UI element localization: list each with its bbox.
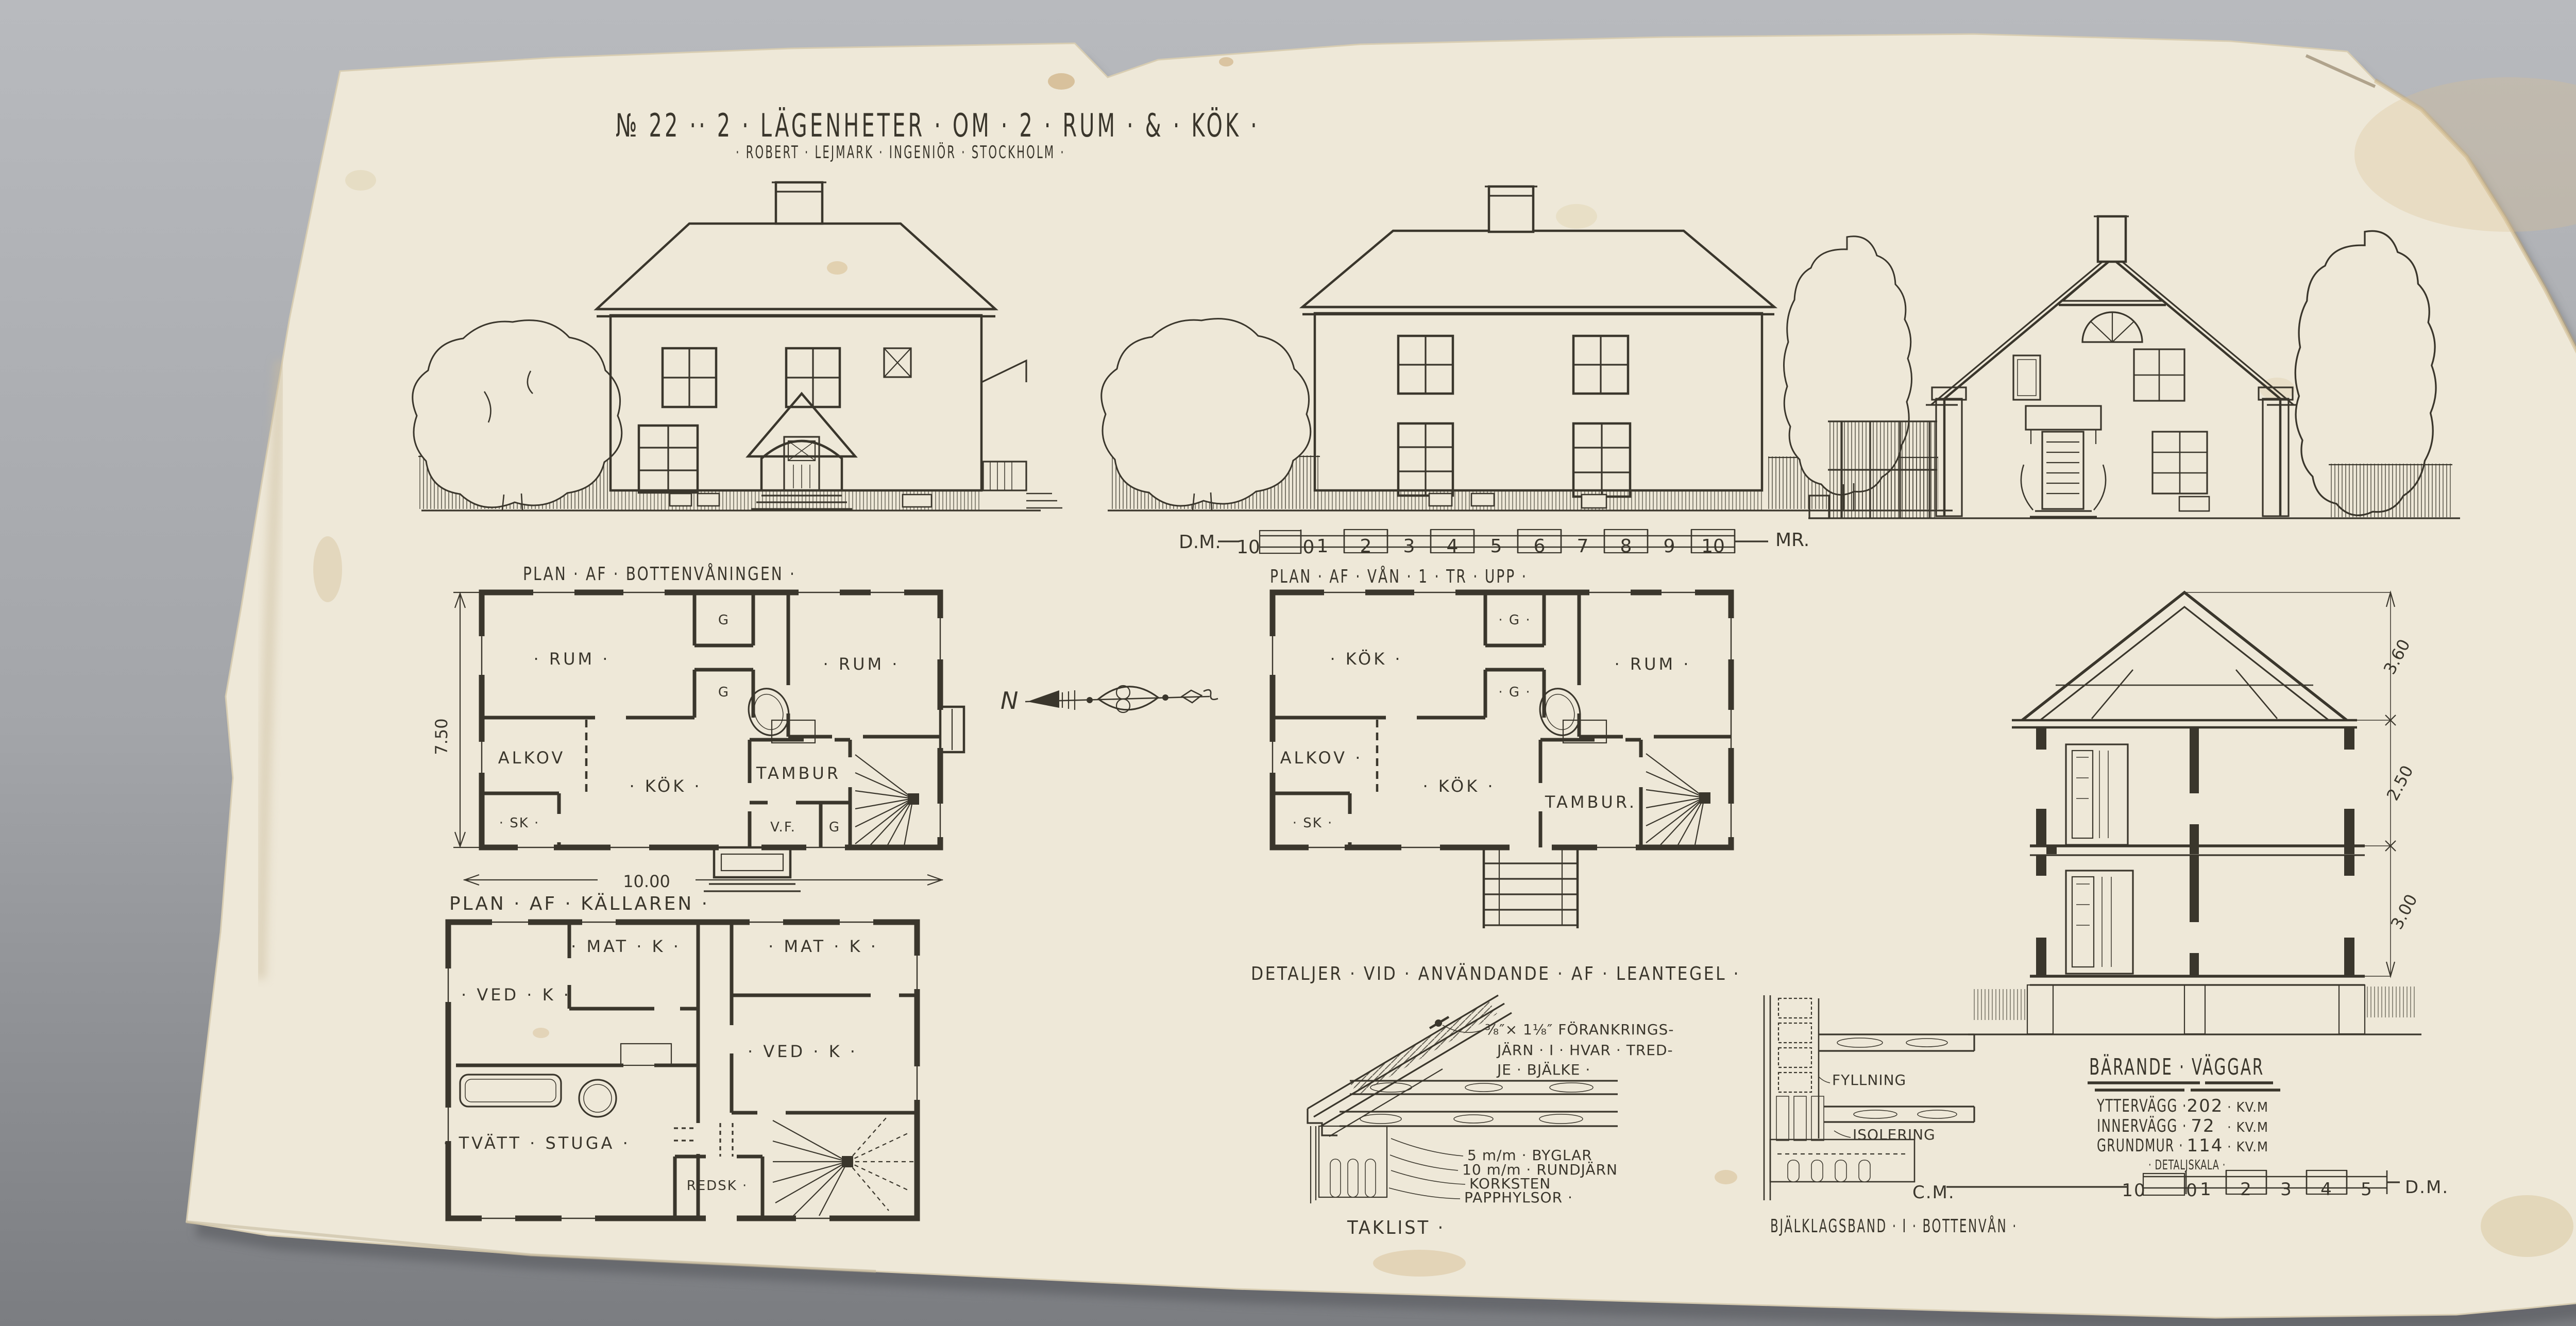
north-letter: N (1001, 687, 1018, 715)
annotation: ⅜″× 1⅛″ FÖRANKRINGS- (1485, 1021, 1674, 1038)
room-label: · KÖK · (1422, 776, 1495, 796)
room-label: ALKOV · (1280, 748, 1363, 768)
room-label: G (829, 820, 840, 835)
room-label: · VED · K · (748, 1042, 858, 1061)
scale-tick: 0 (1303, 537, 1315, 558)
row-value: 202 (2187, 1096, 2224, 1116)
basement-window (698, 494, 719, 506)
row-label: YTTERVÄGG · (2096, 1096, 2187, 1116)
chimney (776, 182, 822, 224)
room-label: · MAT · K · (768, 937, 878, 956)
basement-window (1429, 494, 1452, 506)
room-label: G (718, 613, 730, 628)
room-label: · SK · (499, 815, 540, 831)
detail-caption: BJÄLKLAGSBAND · I · BOTTENVÅN · (1770, 1215, 2018, 1237)
scale-tick: 10 (2122, 1180, 2146, 1201)
row-label: GRUNDMUR · (2097, 1135, 2183, 1156)
annotation: ISOLERING (1853, 1126, 1936, 1143)
detail-scale-label: · DETALJSKALA · (2148, 1158, 2226, 1173)
annotation: PAPPHYLSOR · (1464, 1189, 1573, 1206)
foundation (1315, 490, 1762, 511)
drawing-sheet-scene: № 22 ·· 2 · LÄGENHETER · OM · 2 · RUM · … (0, 0, 2576, 1326)
scale-tick: 4 (1447, 536, 1459, 557)
basement-window (1471, 494, 1494, 506)
room-label: · KÖK · (629, 776, 702, 796)
detail-caption: TAKLIST · (1347, 1217, 1445, 1238)
scale-tick: 3 (2280, 1179, 2293, 1200)
annotation: JE · BJÄLKE · (1496, 1061, 1590, 1078)
scale-tick: 6 (1534, 536, 1546, 557)
fence (2329, 464, 2452, 517)
scale-tick: 1 (2200, 1179, 2212, 1200)
dimension: 7.50 (432, 718, 451, 755)
scale-unit-right: MR. (1775, 530, 1809, 551)
room-label: · MAT · K · (571, 937, 681, 956)
scale-tick: 8 (1620, 536, 1632, 557)
plan-title: PLAN · AF · KÄLLAREN · (449, 893, 709, 914)
scale-tick: 3 (1403, 536, 1415, 557)
room-label: · RUM · (1615, 654, 1691, 674)
scale-tick: 0 (2186, 1180, 2198, 1201)
basement-window (670, 494, 691, 506)
room-label: TAMBUR. (1545, 792, 1637, 812)
scale-unit-left: D.M. (1179, 532, 1221, 553)
annotation: FYLLNING (1832, 1072, 1906, 1089)
row-unit: · KV.M (2227, 1100, 2268, 1115)
scale-tick: 2 (2240, 1179, 2252, 1200)
scale-tick: 7 (1577, 536, 1589, 557)
basement-window (2179, 497, 2209, 511)
annotation: JÄRN · I · HVAR · TRED- (1496, 1042, 1673, 1059)
row-value: 114 (2187, 1135, 2224, 1156)
scale-tick: 2 (1360, 536, 1372, 557)
plan-title: PLAN · AF · BOTTENVÅNINGEN · (523, 563, 796, 585)
room-label: V.F. (770, 820, 796, 835)
room-label: · RUM · (823, 654, 900, 674)
room-label: · G · (1498, 613, 1531, 628)
paper-sheet (187, 34, 2576, 1318)
tree (1101, 319, 1311, 506)
room-label: REDSK · (687, 1178, 748, 1194)
dimension: 10.00 (623, 872, 670, 891)
scale-tick: 1 (1317, 536, 1329, 557)
room-label: · VED · K · (461, 985, 571, 1005)
scale-tick: 9 (1664, 536, 1675, 557)
room-label: G (718, 685, 730, 700)
row-unit: · KV.M (2227, 1140, 2268, 1155)
scale-tick: 10 (1236, 537, 1260, 558)
row-unit: · KV.M (2227, 1120, 2268, 1135)
fence (1809, 421, 1937, 518)
photo-of-architectural-drawing: № 22 ·· 2 · LÄGENHETER · OM · 2 · RUM · … (0, 0, 2576, 1326)
room-label: ALKOV (498, 748, 565, 768)
scale-unit-left: C.M. (1912, 1182, 1955, 1203)
basement-window (1582, 495, 1606, 508)
plan-title: PLAN · AF · VÅN · 1 · TR · UPP · (1270, 565, 1528, 587)
tree (413, 320, 622, 507)
sheet-subtitle: · ROBERT · LEJMARK · INGENIÖR · STOCKHOL… (736, 142, 1065, 163)
row-value: 72 (2191, 1116, 2215, 1136)
sheet-title: № 22 ·· 2 · LÄGENHETER · OM · 2 · RUM · … (616, 107, 1260, 144)
chimney (2098, 216, 2126, 262)
scale-unit-right: D.M. (2405, 1177, 2449, 1198)
room-label: TAMBUR (756, 763, 841, 783)
chimney (1489, 186, 1533, 232)
row-label: INNERVÄGG · (2097, 1116, 2187, 1136)
scale-tick: 5 (2361, 1179, 2373, 1200)
basement-window (903, 495, 931, 507)
scale-tick: 4 (2320, 1179, 2333, 1200)
scale-tick: 10 (1701, 536, 1725, 557)
room-label: · RUM · (534, 649, 611, 669)
room-label: · G · (1498, 685, 1531, 700)
room-label: · TVÄTT · STUGA · (443, 1133, 631, 1153)
scale-tick: 5 (1490, 536, 1502, 557)
room-label: · KÖK · (1330, 649, 1402, 669)
room-label: · SK · (1293, 815, 1333, 831)
block-heading: BÄRANDE · VÄGGAR (2089, 1053, 2264, 1080)
details-heading: DETALJER · VID · ANVÄNDANDE · AF · LEANT… (1251, 963, 1740, 984)
